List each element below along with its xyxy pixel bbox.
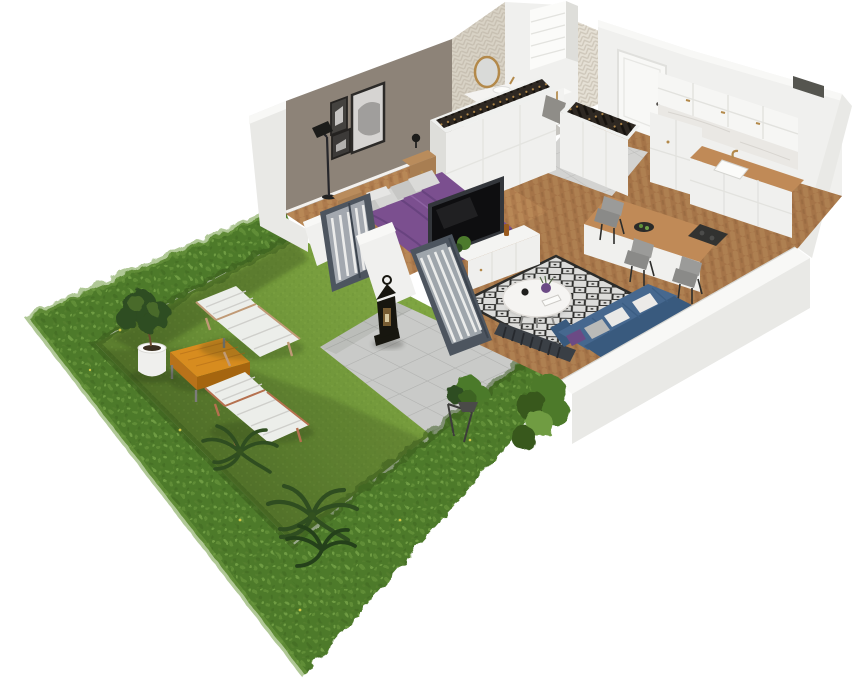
nightstand-knob [421, 171, 424, 174]
serving-plate [634, 222, 654, 232]
tall-cabinet-knob [667, 141, 670, 144]
bathroom-mirror [475, 57, 499, 87]
plate-food-1 [639, 224, 643, 228]
lantern-candle [385, 314, 389, 322]
amber-bottle [504, 224, 509, 236]
table-lamp-shade [412, 134, 420, 142]
cooktop-burner-1 [700, 231, 705, 236]
sideboard-knob [480, 269, 483, 272]
floorplan-canvas [0, 0, 853, 700]
black-bowl [521, 288, 528, 295]
vase [541, 283, 551, 293]
coffee-table-top [503, 279, 571, 317]
floorplan-render [0, 0, 853, 700]
olive-pot-soil [143, 345, 161, 351]
palm1-center [237, 449, 244, 456]
picture-large-art [358, 102, 380, 136]
cooktop-burner-2 [710, 236, 715, 241]
plate-food-2 [645, 226, 649, 230]
palm2-center [308, 512, 316, 520]
